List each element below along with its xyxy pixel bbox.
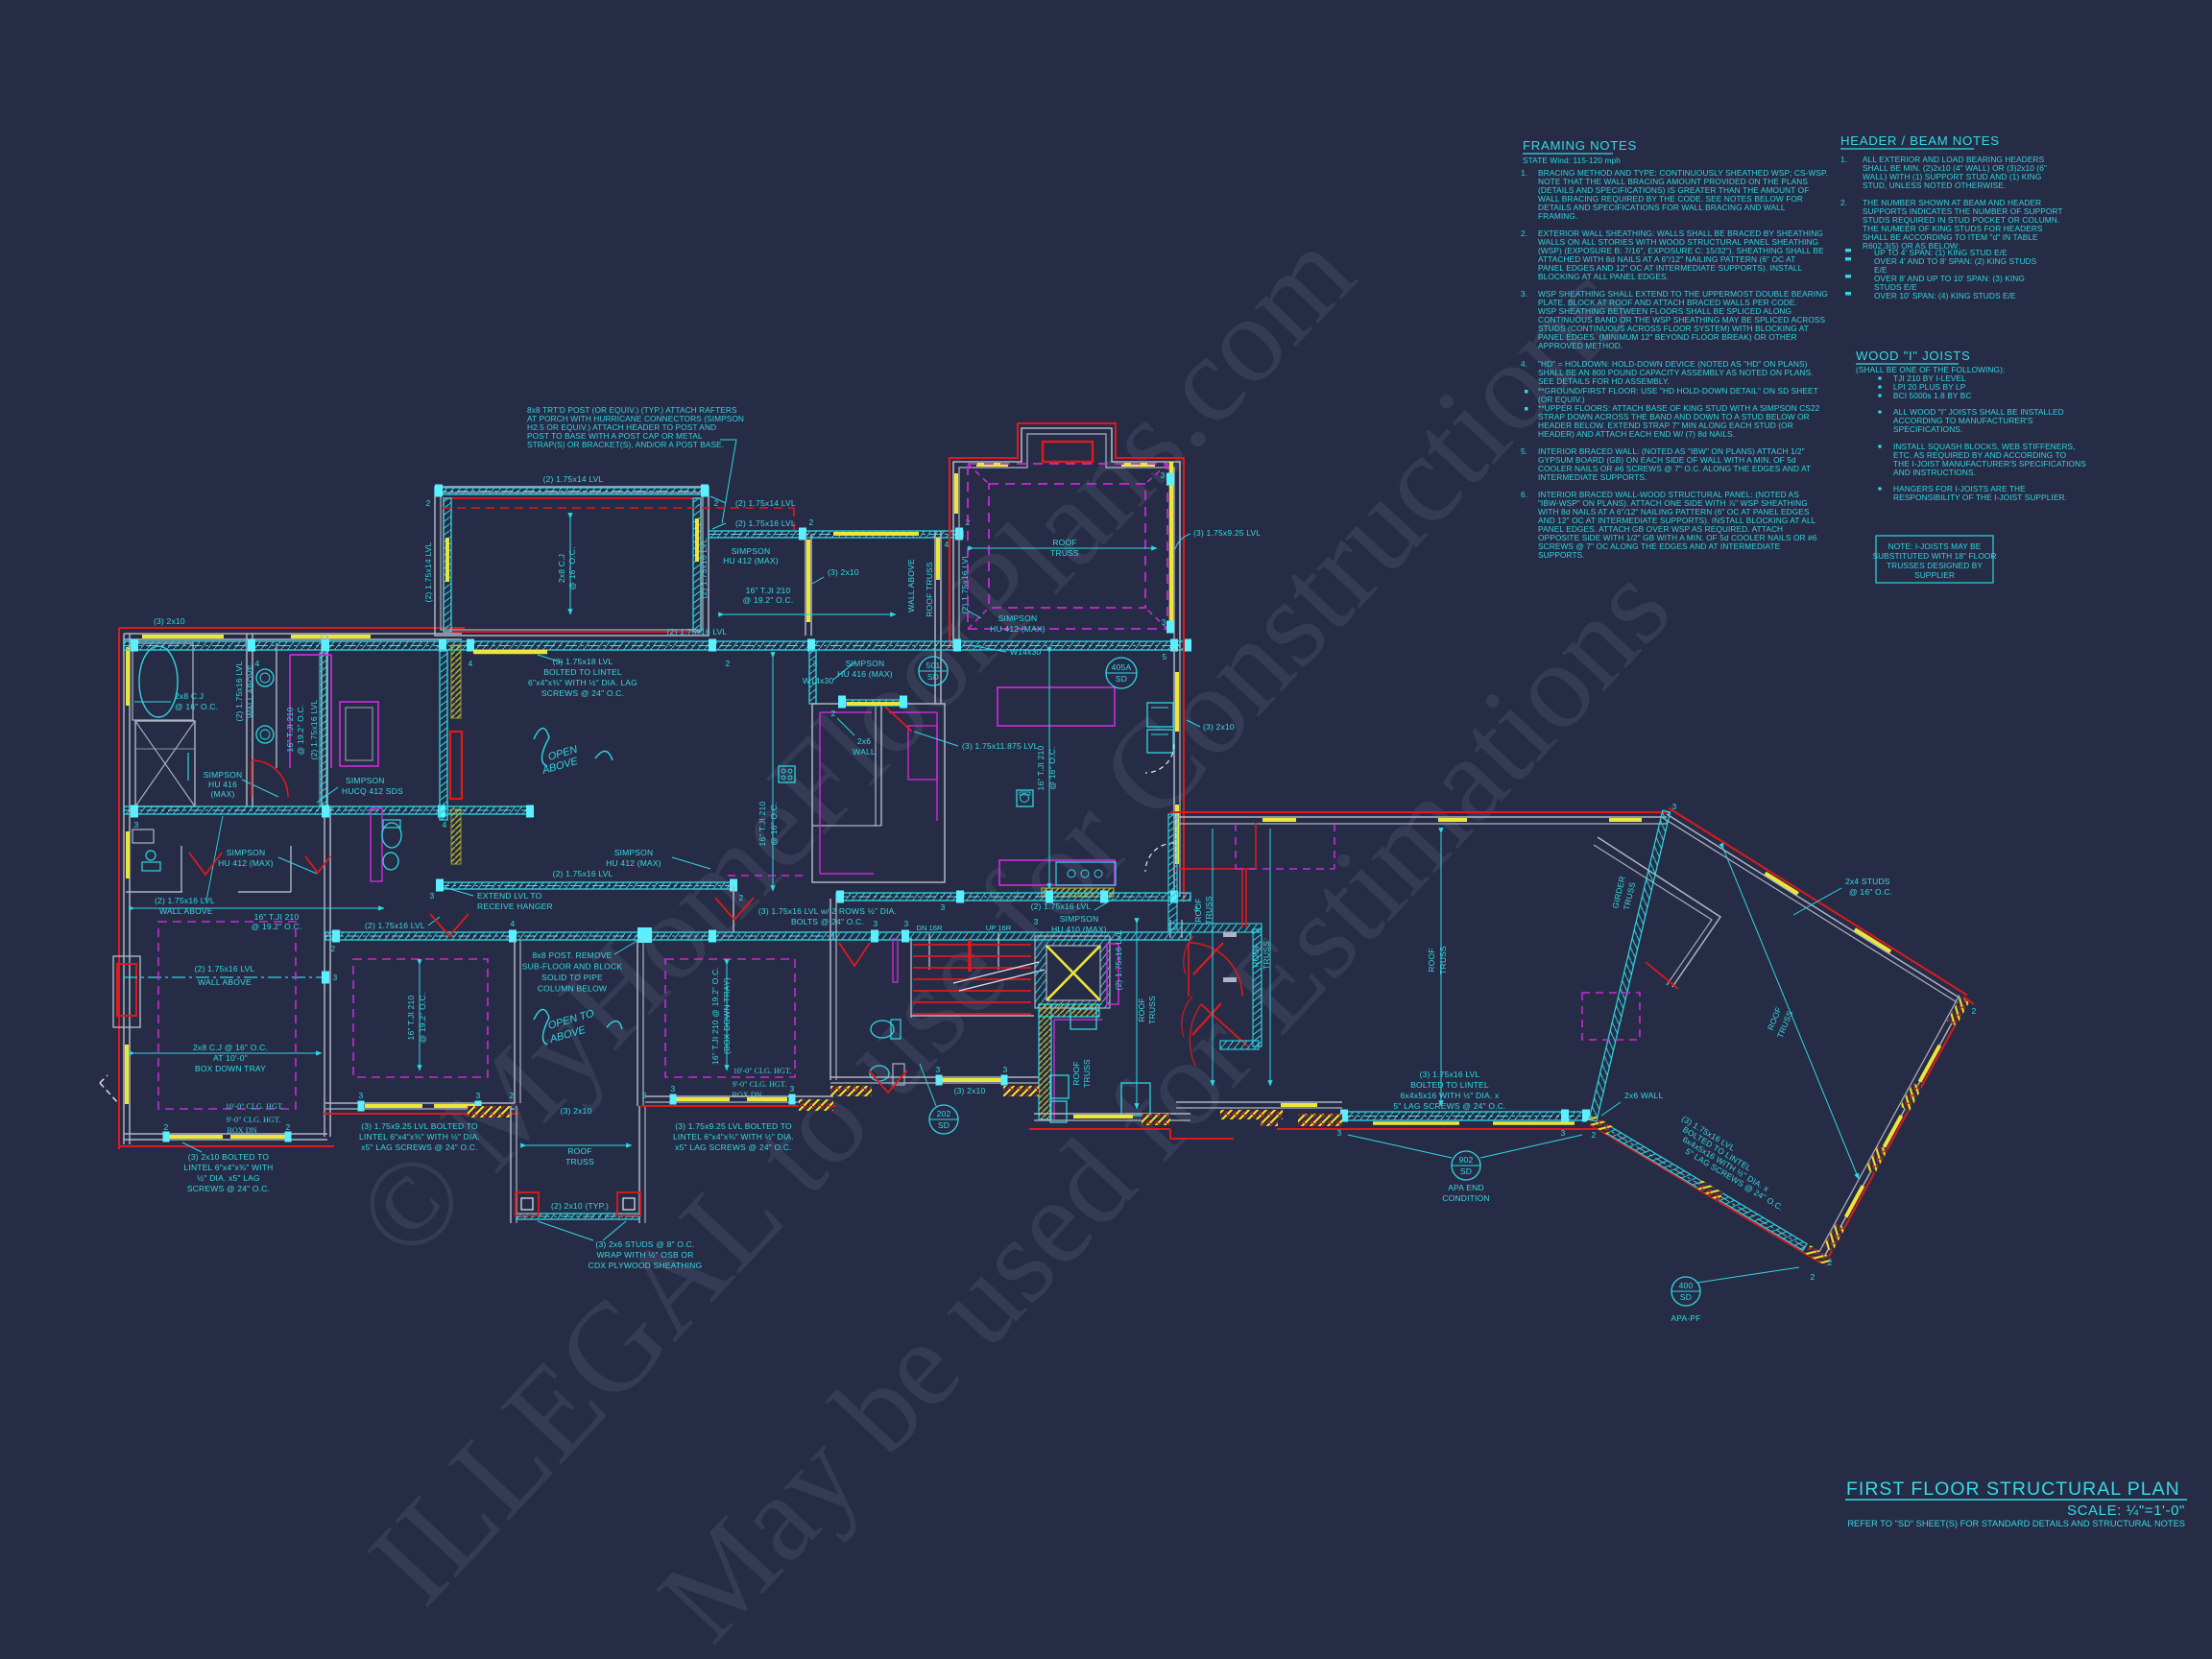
svg-text:(3) 2x6 STUDS @ 8" O.C.: (3) 2x6 STUDS @ 8" O.C. (595, 1239, 694, 1249)
svg-text:(2) 1.75x16 LVL: (2) 1.75x16 LVL (735, 518, 796, 528)
svg-text:2.: 2. (1840, 198, 1847, 207)
svg-text:SIMPSON: SIMPSON (204, 770, 243, 780)
svg-text:(MAX): (MAX) (210, 789, 234, 799)
svg-text:FIRST FLOOR STRUCTURAL PLAN: FIRST FLOOR STRUCTURAL PLAN (1846, 1479, 2180, 1500)
svg-text:4.: 4. (1521, 359, 1527, 369)
svg-text:1.: 1. (1521, 168, 1527, 178)
svg-text:2: 2 (286, 1122, 291, 1132)
svg-text:ROOF: ROOF (1251, 943, 1261, 967)
svg-text:APA END: APA END (1448, 1183, 1484, 1192)
svg-text:STUD, UNLESS NOTED OTHERWISE.: STUD, UNLESS NOTED OTHERWISE. (1863, 180, 2006, 190)
svg-text:HEADER) AND ATTACH EACH END W/: HEADER) AND ATTACH EACH END W/ (7) 8d NA… (1538, 429, 1735, 439)
svg-text:5: 5 (1163, 652, 1167, 661)
svg-text:FRAMING.: FRAMING. (1538, 211, 1577, 221)
svg-text:½" DIA. x5" LAG: ½" DIA. x5" LAG (197, 1173, 260, 1183)
svg-text:x5" LAG SCREWS @ 24" O.C.: x5" LAG SCREWS @ 24" O.C. (675, 1142, 792, 1152)
svg-text:4: 4 (511, 919, 516, 928)
svg-text:W14x30: W14x30 (803, 676, 833, 685)
svg-text:4: 4 (443, 820, 447, 829)
svg-text:1.: 1. (1840, 155, 1847, 164)
svg-text:(3) 1.75x16 LVL w/ 2 ROWS ½" D: (3) 1.75x16 LVL w/ 2 ROWS ½" DIA. (758, 906, 897, 916)
svg-text:ROOF: ROOF (1193, 898, 1203, 922)
svg-text:SD: SD (1680, 1292, 1692, 1302)
svg-text:2x6 WALL: 2x6 WALL (1624, 1091, 1664, 1100)
svg-text:FRAMING NOTES: FRAMING NOTES (1523, 138, 1637, 153)
svg-text:2: 2 (642, 1091, 647, 1100)
svg-text:HU 416: HU 416 (208, 780, 237, 789)
svg-text:5" LAG SCREWS @ 24" O.C.: 5" LAG SCREWS @ 24" O.C. (1393, 1101, 1505, 1111)
svg-text:(2) 1.75x16 LVL: (2) 1.75x16 LVL (699, 539, 709, 599)
svg-text:SD: SD (927, 672, 939, 682)
svg-text:APPROVED METHOD.: APPROVED METHOD. (1538, 341, 1623, 350)
svg-text:(2) 1.75x14 LVL: (2) 1.75x14 LVL (423, 542, 433, 603)
svg-text:AT 10'-0": AT 10'-0" (213, 1053, 248, 1063)
svg-text:6.: 6. (1521, 490, 1527, 499)
svg-text:SIMPSON: SIMPSON (998, 613, 1038, 623)
svg-text:8x8 POST. REMOVE: 8x8 POST. REMOVE (532, 950, 612, 960)
svg-text:2: 2 (164, 1122, 169, 1132)
svg-text:(2) 1.75x16 LVL: (2) 1.75x16 LVL (365, 921, 425, 930)
svg-text:@ 19.2" O.C.: @ 19.2" O.C. (252, 922, 302, 931)
svg-text:SCREWS @ 24" O.C.: SCREWS @ 24" O.C. (541, 688, 624, 698)
svg-text:(3) 1.75x9.25 LVL BOLTED TO: (3) 1.75x9.25 LVL BOLTED TO (675, 1121, 792, 1131)
svg-text:2: 2 (1811, 1272, 1815, 1282)
svg-text:SUPPORTS.: SUPPORTS. (1538, 550, 1585, 560)
svg-text:4: 4 (469, 659, 473, 668)
svg-text:2: 2 (809, 517, 814, 527)
svg-text:SEE DETAILS FOR HD ASSEMBLY.: SEE DETAILS FOR HD ASSEMBLY. (1538, 376, 1670, 386)
svg-text:3: 3 (430, 891, 435, 901)
svg-text:(3) 2x10: (3) 2x10 (954, 1086, 986, 1095)
svg-text:10'-0" CLG. HGT.: 10'-0" CLG. HGT. (733, 1067, 792, 1075)
svg-text:3: 3 (134, 820, 139, 829)
svg-text:902: 902 (1459, 1155, 1474, 1165)
svg-text:BCI 5000s 1.8 BY BC: BCI 5000s 1.8 BY BC (1893, 391, 1972, 400)
svg-text:2: 2 (510, 1091, 515, 1100)
svg-text:SIMPSON: SIMPSON (227, 848, 266, 857)
svg-text:SPECIFICATIONS.: SPECIFICATIONS. (1893, 424, 1962, 434)
svg-text:4: 4 (255, 659, 260, 668)
svg-text:ROOF: ROOF (1052, 538, 1076, 547)
svg-text:TRUSS: TRUSS (1147, 996, 1157, 1024)
svg-text:TRUSS: TRUSS (1204, 896, 1214, 925)
svg-text:3: 3 (790, 1084, 795, 1094)
svg-text:(3) 1.75x18 LVL: (3) 1.75x18 LVL (553, 657, 613, 666)
svg-text:2: 2 (726, 659, 731, 668)
svg-text:DN 16R: DN 16R (916, 924, 943, 932)
svg-text:3: 3 (1161, 470, 1166, 480)
svg-text:(2) 1.75x16 LVL: (2) 1.75x16 LVL (195, 964, 255, 974)
svg-text:(2) 1.75x16 LVL: (2) 1.75x16 LVL (155, 896, 215, 905)
svg-text:CDX PLYWOOD SHEATHING: CDX PLYWOOD SHEATHING (589, 1261, 703, 1270)
svg-text:SD: SD (1460, 1166, 1472, 1176)
svg-text:(3) 2x10 BOLTED TO: (3) 2x10 BOLTED TO (188, 1152, 270, 1162)
svg-text:ROOF: ROOF (1071, 1061, 1081, 1085)
svg-text:(3) 1.75x9.25 LVL BOLTED TO: (3) 1.75x9.25 LVL BOLTED TO (361, 1121, 478, 1131)
svg-text:@ 16" O.C.: @ 16" O.C. (175, 702, 218, 711)
svg-text:SIMPSON: SIMPSON (346, 776, 385, 785)
svg-text:SUBSTITUTED WITH 18" FLOOR: SUBSTITUTED WITH 18" FLOOR (1872, 551, 1996, 561)
svg-text:SUB-FLOOR AND BLOCK: SUB-FLOOR AND BLOCK (522, 962, 623, 972)
svg-text:(2) 1.75x16 LVL: (2) 1.75x16 LVL (1031, 902, 1092, 911)
svg-text:STATE Wind: 115-120 mph: STATE Wind: 115-120 mph (1523, 156, 1621, 165)
svg-text:9'-0" CLG. HGT.: 9'-0" CLG. HGT. (227, 1116, 281, 1124)
svg-text:TRUSS: TRUSS (1262, 941, 1271, 970)
svg-text:SIMPSON: SIMPSON (614, 848, 654, 857)
svg-text:WALL ABOVE: WALL ABOVE (906, 559, 916, 613)
svg-text:3: 3 (1162, 617, 1166, 627)
svg-text:(3) 2x10: (3) 2x10 (154, 616, 185, 626)
svg-text:SIMPSON: SIMPSON (846, 659, 885, 668)
svg-text:9'-0" CLG. HGT.: 9'-0" CLG. HGT. (733, 1080, 787, 1089)
svg-text:SOLID TO PIPE: SOLID TO PIPE (541, 973, 603, 982)
svg-text:(3) 2x10: (3) 2x10 (828, 567, 859, 577)
svg-text:@ 16" O.C.: @ 16" O.C. (1047, 746, 1057, 789)
svg-text:16" T.JI 210: 16" T.JI 210 (254, 912, 300, 922)
svg-text:WOOD "I" JOISTS: WOOD "I" JOISTS (1856, 349, 1971, 363)
svg-text:BOX DOWN TRAY: BOX DOWN TRAY (195, 1064, 266, 1073)
svg-text:202: 202 (937, 1109, 951, 1118)
svg-text:NOTE: I-JOISTS MAY BE: NOTE: I-JOISTS MAY BE (1888, 541, 1982, 551)
svg-text:@ 16" O.C.: @ 16" O.C. (567, 546, 577, 589)
svg-text:WALL ABOVE: WALL ABOVE (246, 664, 255, 718)
svg-text:REFER TO "SD" SHEET(S) FOR STA: REFER TO "SD" SHEET(S) FOR STANDARD DETA… (1847, 1519, 2185, 1528)
svg-text:INTERMEDIATE SUPPORTS.: INTERMEDIATE SUPPORTS. (1538, 472, 1647, 482)
svg-text:ROOF: ROOF (1427, 948, 1436, 972)
svg-text:3: 3 (941, 902, 946, 912)
svg-text:AND INSTRUCTIONS.: AND INSTRUCTIONS. (1893, 468, 1976, 477)
svg-text:3: 3 (359, 1091, 364, 1100)
svg-text:16" T.JI 210 @ 19.2" O.C.: 16" T.JI 210 @ 19.2" O.C. (710, 967, 720, 1065)
svg-text:(3) 1.75x9.25 LVL: (3) 1.75x9.25 LVL (1193, 528, 1261, 538)
svg-text:LINTEL 6"x4"x⅜" WITH: LINTEL 6"x4"x⅜" WITH (183, 1163, 273, 1172)
svg-text:6x4x5x16 WITH ½" DIA. x: 6x4x5x16 WITH ½" DIA. x (1400, 1091, 1500, 1100)
svg-text:5.: 5. (1521, 446, 1527, 456)
svg-text:(2) 1.75x16 LVL: (2) 1.75x16 LVL (1114, 930, 1123, 991)
svg-text:TRUSSES DESIGNED BY: TRUSSES DESIGNED BY (1887, 561, 1983, 570)
svg-text:SCALE: ¼"=1'-0": SCALE: ¼"=1'-0" (2067, 1503, 2185, 1519)
svg-text:RESPONSIBILITY OF THE I-JOIST: RESPONSIBILITY OF THE I-JOIST SUPPLIER. (1893, 493, 2067, 502)
svg-text:(3) 1.75x11.875 LVL: (3) 1.75x11.875 LVL (962, 741, 1039, 751)
svg-text:@ 19.2" O.C.: @ 19.2" O.C. (743, 595, 794, 605)
svg-text:HU 412 (MAX): HU 412 (MAX) (990, 624, 1046, 634)
svg-text:3: 3 (1034, 917, 1039, 926)
svg-text:SD: SD (938, 1120, 950, 1130)
svg-text:BOLTED TO LINTEL: BOLTED TO LINTEL (543, 667, 622, 677)
svg-text:(3) 1.75x16 LVL: (3) 1.75x16 LVL (1420, 1070, 1480, 1079)
svg-text:BOLTS @ 24" O.C.: BOLTS @ 24" O.C. (791, 917, 864, 926)
svg-text:COLUMN BELOW: COLUMN BELOW (538, 984, 607, 994)
svg-text:2: 2 (426, 498, 431, 508)
svg-text:@ 19.2" O.C.: @ 19.2" O.C. (418, 993, 427, 1044)
svg-text:(2) 1.75x14 LVL: (2) 1.75x14 LVL (735, 498, 796, 508)
svg-text:SIMPSON: SIMPSON (732, 546, 771, 556)
svg-text:HUCQ 412 SDS: HUCQ 412 SDS (342, 786, 403, 796)
svg-text:WALL ABOVE: WALL ABOVE (198, 977, 252, 987)
svg-text:(3) 2x10: (3) 2x10 (1203, 722, 1235, 732)
svg-text:UP 16R: UP 16R (986, 924, 1012, 932)
svg-text:HU 412 (MAX): HU 412 (MAX) (218, 858, 274, 868)
svg-text:2.: 2. (1521, 228, 1527, 238)
svg-text:TRUSS: TRUSS (1050, 548, 1079, 558)
svg-text:(2) 1.75x14 LVL: (2) 1.75x14 LVL (543, 474, 604, 484)
svg-text:(3) 2x10: (3) 2x10 (561, 1106, 592, 1116)
svg-text:(2) 1.75x16 LVL: (2) 1.75x16 LVL (309, 700, 319, 760)
svg-text:2x8 C.J @ 16" O.C.: 2x8 C.J @ 16" O.C. (193, 1043, 268, 1052)
svg-text:(BOX DOWN TRAY): (BOX DOWN TRAY) (722, 977, 732, 1054)
svg-text:2x8 C.J: 2x8 C.J (175, 691, 204, 701)
svg-text:16" T.JI 210: 16" T.JI 210 (757, 802, 767, 847)
svg-text:HU 412 (MAX): HU 412 (MAX) (606, 858, 661, 868)
svg-text:@ 19.2" O.C.: @ 19.2" O.C. (296, 705, 305, 756)
svg-text:3: 3 (671, 1084, 676, 1094)
svg-text:3: 3 (874, 919, 878, 928)
svg-text:WALL: WALL (853, 747, 876, 757)
svg-text:(2) 1.75x16 LVL: (2) 1.75x16 LVL (234, 661, 244, 722)
svg-text:TRUSS: TRUSS (1082, 1059, 1092, 1088)
svg-text:OVER 10' SPAN: (4) KING STUDS: OVER 10' SPAN: (4) KING STUDS E/E (1874, 291, 2016, 301)
svg-text:SD: SD (1116, 674, 1127, 684)
svg-text:ROOF: ROOF (1137, 998, 1146, 1022)
svg-text:2x8 C.J: 2x8 C.J (557, 554, 566, 583)
svg-text:STRAP(S) OR BRACKET(S), AND/OR: STRAP(S) OR BRACKET(S), AND/OR A POST BA… (527, 440, 724, 449)
svg-text:3: 3 (1003, 1065, 1008, 1074)
svg-text:2x6: 2x6 (857, 736, 871, 746)
svg-text:TRUSS: TRUSS (1438, 946, 1448, 974)
svg-text:6"x4"x⅜" WITH ½" DIA. LAG: 6"x4"x⅜" WITH ½" DIA. LAG (528, 678, 637, 687)
svg-text:WRAP WITH ½" OSB OR: WRAP WITH ½" OSB OR (596, 1250, 693, 1260)
svg-text:SIMPSON: SIMPSON (1060, 914, 1099, 924)
svg-text:EXTEND LVL TO: EXTEND LVL TO (477, 891, 542, 901)
svg-text:3.: 3. (1521, 289, 1527, 299)
svg-text:501: 501 (926, 661, 941, 670)
svg-text:@ 16" O.C.: @ 16" O.C. (1849, 887, 1892, 897)
svg-text:3: 3 (936, 1065, 941, 1074)
svg-text:10'-0" CLG. HGT.: 10'-0" CLG. HGT. (226, 1102, 284, 1111)
svg-text:16" T.JI 210: 16" T.JI 210 (285, 708, 295, 753)
svg-text:(2) 1.75x16 LVL: (2) 1.75x16 LVL (553, 869, 613, 878)
svg-text:3: 3 (476, 1091, 481, 1100)
svg-text:BLOCKING AT ALL PANEL EDGES.: BLOCKING AT ALL PANEL EDGES. (1538, 272, 1669, 281)
svg-text:SUPPLIER: SUPPLIER (1914, 570, 1955, 580)
svg-text:TRUSS: TRUSS (565, 1157, 594, 1166)
svg-text:LINTEL 6"x4"x⅜" WITH ½" DIA.: LINTEL 6"x4"x⅜" WITH ½" DIA. (359, 1132, 480, 1142)
svg-text:16" T.JI 210: 16" T.JI 210 (746, 586, 791, 595)
svg-text:OVER 4' AND TO 8' SPAN: (2) KI: OVER 4' AND TO 8' SPAN: (2) KING STUDS (1874, 256, 2037, 266)
svg-text:CONDITION: CONDITION (1442, 1193, 1490, 1203)
svg-text:3: 3 (333, 973, 338, 982)
svg-text:400: 400 (1679, 1281, 1694, 1290)
svg-text:ROOF: ROOF (567, 1146, 591, 1156)
svg-text:3: 3 (904, 919, 909, 928)
svg-text:x5" LAG SCREWS @ 24" O.C.: x5" LAG SCREWS @ 24" O.C. (361, 1142, 478, 1152)
svg-text:405A: 405A (1112, 662, 1132, 672)
svg-text:(2) 1.75x16 LVL: (2) 1.75x16 LVL (667, 627, 728, 637)
svg-text:2: 2 (1592, 1130, 1597, 1140)
svg-text:16" T.JI 210: 16" T.JI 210 (406, 996, 416, 1041)
svg-text:SCREWS @ 24" O.C.: SCREWS @ 24" O.C. (187, 1184, 270, 1193)
svg-text:APA-PF: APA-PF (1671, 1313, 1700, 1323)
svg-text:16" T.JI 210: 16" T.JI 210 (1036, 746, 1046, 791)
svg-text:2: 2 (831, 709, 836, 718)
svg-text:RECEIVE HANGER: RECEIVE HANGER (477, 902, 553, 911)
svg-text:2: 2 (1972, 1006, 1977, 1016)
svg-text:HU 416 (MAX): HU 416 (MAX) (837, 669, 893, 679)
svg-text:ROOF TRUSS: ROOF TRUSS (925, 562, 934, 617)
svg-text:2: 2 (1828, 1258, 1833, 1267)
svg-text:W14x30: W14x30 (1010, 647, 1041, 657)
svg-text:BOLTED TO LINTEL: BOLTED TO LINTEL (1410, 1080, 1489, 1090)
svg-text:2x4 STUDS: 2x4 STUDS (1845, 877, 1890, 886)
svg-text:2: 2 (739, 893, 744, 902)
svg-text:HU 412 (MAX): HU 412 (MAX) (723, 556, 779, 565)
svg-text:4: 4 (945, 540, 950, 549)
svg-text:LINTEL 6"x4"x⅜" WITH ½" DIA.: LINTEL 6"x4"x⅜" WITH ½" DIA. (673, 1132, 794, 1142)
svg-text:@ 16" O.C.: @ 16" O.C. (769, 802, 779, 845)
svg-text:(2) 2x10 (TYP.): (2) 2x10 (TYP.) (551, 1201, 609, 1211)
svg-text:2: 2 (331, 944, 336, 953)
svg-text:HEADER / BEAM NOTES: HEADER / BEAM NOTES (1840, 133, 2000, 148)
